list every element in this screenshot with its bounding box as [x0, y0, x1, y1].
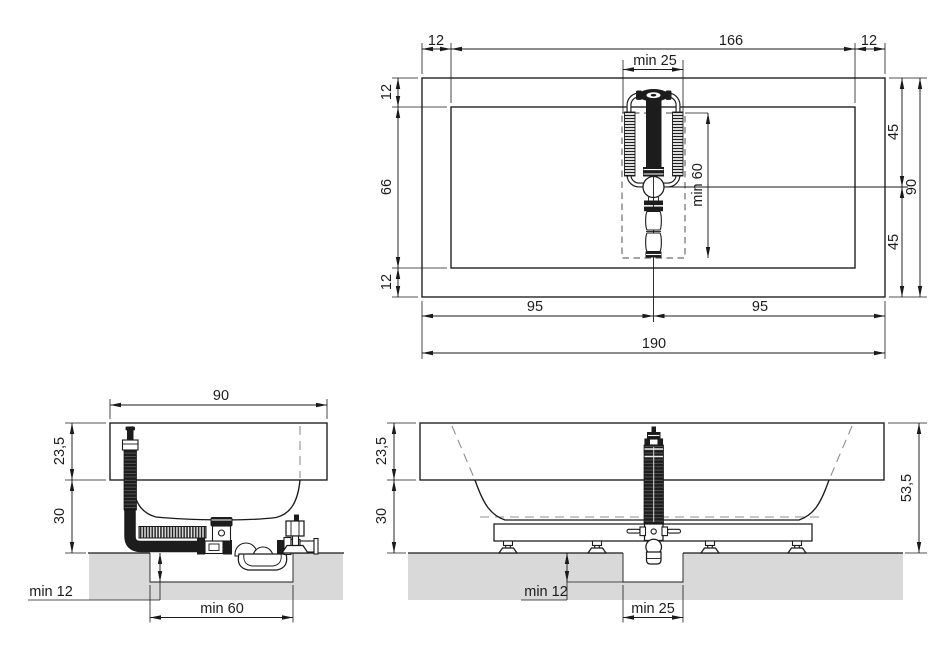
- tub-rim-end-view: [110, 423, 327, 480]
- trap-flange-lower: [644, 207, 663, 212]
- dim-side-total-height: 53,5: [888, 423, 927, 553]
- dim-end-total-width-label: 90: [213, 388, 229, 404]
- dim-side-rim-height: 23,5: [374, 437, 390, 465]
- dim-plan-total-length: 190: [642, 336, 666, 352]
- dim-plan-drain-recess-width-label: min 25: [633, 53, 677, 69]
- flexible-overflow-hose: [139, 527, 206, 539]
- plan-view: 12 166 12 min 25 12 66 12: [379, 33, 927, 359]
- dim-end-rim-height: 23,5: [52, 437, 68, 465]
- trap-barrel-upper: [646, 212, 662, 231]
- trap-flange-upper: [644, 201, 663, 206]
- dim-end-left-column: 23,5 30: [52, 423, 106, 553]
- dim-end-recess-depth-label: min 12: [29, 584, 73, 600]
- overflow-knob-cap: [126, 427, 136, 431]
- adjustable-foot-end-view: [282, 515, 308, 554]
- dim-side-left-column: 23,5 30: [374, 423, 416, 553]
- trap-outlet-cylinder: [647, 552, 662, 564]
- dim-side-base-height: 30: [374, 508, 390, 524]
- bathtub-installation-drawing: 12 166 12 min 25 12 66 12: [0, 0, 951, 652]
- foot: [701, 541, 719, 553]
- pipe-coupling: [643, 167, 664, 177]
- dim-side-recess-depth-label: min 12: [524, 584, 568, 600]
- riser-collar: [123, 440, 139, 450]
- dim-plan-inner-width: 66: [379, 179, 395, 195]
- dim-plan-offset-bottom: 12: [379, 274, 395, 290]
- dim-plan-right-column: 45 45 90: [886, 78, 927, 297]
- drain-top-flange: [211, 517, 233, 527]
- overflow-standpipe: [646, 99, 662, 168]
- waste-pipe-nut: [197, 538, 205, 555]
- dim-end-base-height: 30: [52, 508, 68, 524]
- overflow-riser-pipe: [124, 450, 137, 510]
- dim-plan-half-width-upper: 45: [886, 124, 902, 140]
- dim-plan-half-width-lower: 45: [886, 234, 902, 250]
- knob-slot: [651, 94, 657, 97]
- side-elevation-view: 23,5 30 53,5 min 12 min 25: [374, 423, 927, 623]
- trap-inlet-nut: [223, 540, 232, 555]
- dim-plan-offset-right: 12: [861, 33, 877, 49]
- dim-end-total-width: 90: [110, 388, 327, 419]
- tub-bowl-end-view: [132, 480, 300, 520]
- foot-pad: [282, 546, 308, 554]
- dim-plan-inner-length: 166: [719, 33, 743, 49]
- dim-plan-drain-recess-length: min 60: [685, 113, 708, 258]
- dim-plan-offset-left: 12: [428, 33, 444, 49]
- dim-plan-offset-top: 12: [379, 84, 395, 100]
- dim-side-recess-width-label: min 25: [631, 601, 675, 617]
- dim-plan-half-length-left: 95: [527, 299, 543, 315]
- overflow-knob-stem: [127, 429, 134, 440]
- trap-barrel-lower: [646, 233, 662, 252]
- dim-side-total-height-label: 53,5: [899, 474, 915, 502]
- dim-plan-total-width: 90: [904, 179, 920, 195]
- dim-plan-drain-recess-length-label: min 60: [690, 163, 706, 207]
- outlet-end-cap: [314, 539, 318, 555]
- floor-end-view: [88, 553, 344, 600]
- foot: [788, 541, 806, 553]
- waste-outlet-block: [205, 541, 223, 554]
- corrugated-hose-left: [625, 112, 636, 176]
- wing-nut-left: [640, 527, 646, 536]
- end-elevation-view: 90 23,5 30 min 12 min 60: [28, 388, 344, 623]
- corrugated-hose-right: [673, 112, 684, 176]
- foot: [588, 541, 606, 553]
- technical-drawing-canvas: 12 166 12 min 25 12 66 12: [0, 0, 951, 652]
- wing-nut-right: [662, 527, 668, 536]
- column-tip: [652, 427, 657, 433]
- dim-plan-left-column: 12 66 12: [379, 78, 447, 297]
- drain-body-port: [219, 530, 225, 536]
- wing-rod-right: [668, 529, 681, 533]
- tee-block-port: [651, 529, 656, 534]
- dim-end-recess-length-label: min 60: [200, 601, 244, 617]
- foot-bracket: [286, 521, 304, 536]
- waste-overflow-assembly-plan: [625, 89, 684, 322]
- foot: [499, 541, 517, 553]
- wing-rod-left: [627, 529, 640, 533]
- dim-plan-half-length-right: 95: [752, 299, 768, 315]
